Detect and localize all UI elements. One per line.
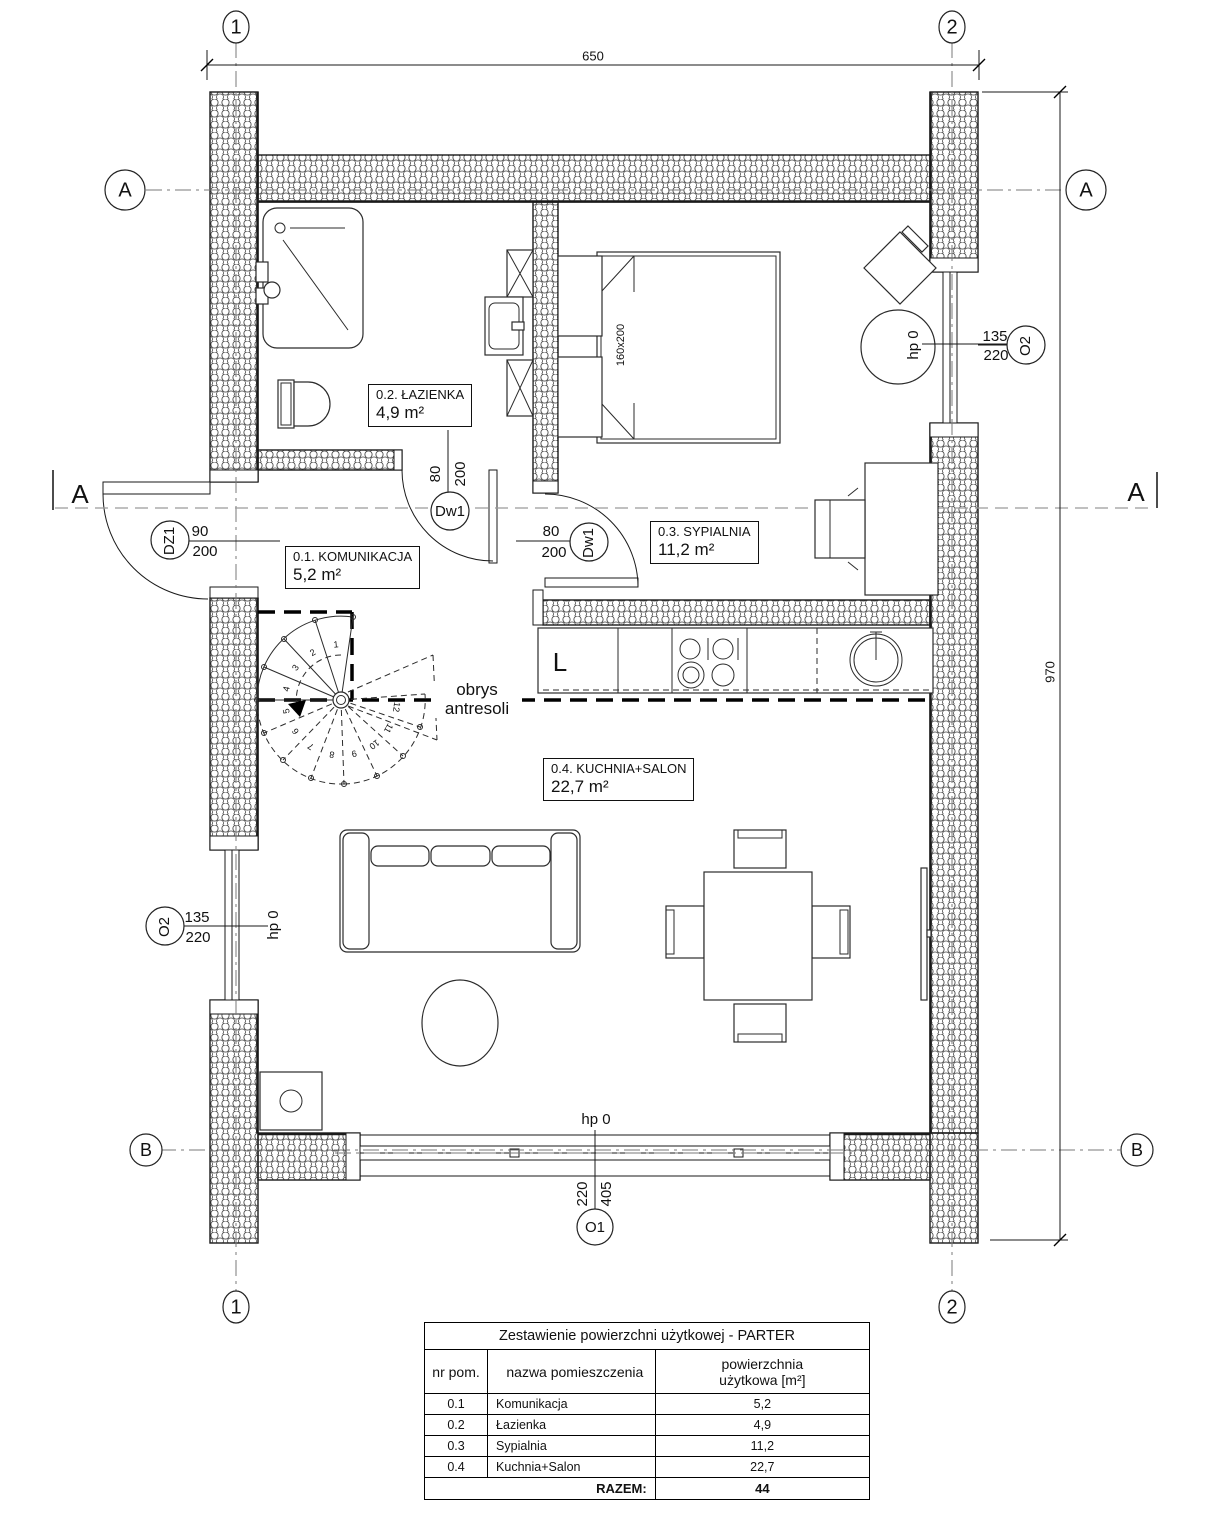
cell-nr: 0.1	[425, 1394, 488, 1415]
window-o2-left	[225, 850, 239, 1000]
window-o2-right	[943, 272, 957, 423]
cell-area: 4,9	[655, 1415, 869, 1436]
room-area: 4,9 m²	[376, 403, 464, 423]
hp-level-bedroom: hp 0	[905, 330, 922, 359]
bedroom-chair	[864, 226, 936, 304]
o2-left-width: 135	[184, 909, 209, 926]
cell-area: 22,7	[655, 1457, 869, 1478]
axis-a-right: A	[1079, 179, 1093, 201]
table-total-row: RAZEM: 44	[425, 1478, 870, 1500]
o2-right-width: 135	[982, 328, 1007, 345]
dw1-bath-symbol: Dw1	[435, 503, 465, 520]
stair-step-number: 3	[290, 663, 301, 673]
dw1-bath-width: 80	[427, 466, 444, 483]
tag-dw1-bedroom: 80 200 Dw1	[516, 523, 608, 561]
area-summary-table: Zestawienie powierzchni użytkowej - PART…	[424, 1322, 870, 1500]
axis-2-bottom: 2	[946, 1296, 957, 1318]
dimension-top: 650	[201, 48, 985, 80]
cell-area: 11,2	[655, 1436, 869, 1457]
stair-step-number: 5	[281, 708, 292, 715]
o2-left-height: 220	[185, 929, 210, 946]
room-label-lazienka: 0.2. ŁAZIENKA 4,9 m²	[368, 384, 472, 427]
bed-size-label: 160x200	[615, 324, 627, 366]
tag-o2-left: 135 220 O2 hp 0	[146, 907, 282, 946]
stair-step-number: 10	[367, 737, 381, 751]
cell-name: Łazienka	[488, 1415, 656, 1436]
col-header-area-line2: użytkowa [m²]	[657, 1372, 868, 1388]
room-title: 0.2. ŁAZIENKA	[376, 388, 464, 403]
bedroom-round-table	[861, 310, 935, 384]
total-value: 44	[655, 1478, 869, 1500]
mezzanine-label-line1: obrys	[432, 681, 522, 700]
nightstand	[558, 256, 602, 437]
axis-b-left: B	[140, 1140, 152, 1160]
axis-2-top: 2	[946, 16, 957, 38]
cell-nr: 0.3	[425, 1436, 488, 1457]
room-area: 11,2 m²	[658, 540, 751, 560]
o2-right-height: 220	[983, 347, 1008, 364]
room-label-sypialnia: 0.3. SYPIALNIA 11,2 m²	[650, 521, 759, 564]
room-area: 5,2 m²	[293, 565, 412, 585]
col-header-nr: nr pom.	[425, 1350, 488, 1394]
table-row: 0.2 Łazienka 4,9	[425, 1415, 870, 1436]
stair-step-number: 8	[329, 749, 336, 760]
room-title: 0.3. SYPIALNIA	[658, 525, 751, 540]
kitchen-counter: L	[538, 628, 933, 693]
dw1-bed-height: 200	[541, 544, 566, 561]
floor-plan-sheet: 1 2 1 2 A A B B A A 650 970	[0, 0, 1206, 1521]
cell-area: 5,2	[655, 1394, 869, 1415]
stair-step-number: 11	[382, 722, 395, 735]
dining-set	[666, 830, 850, 1042]
dz1-symbol: DZ1	[161, 527, 178, 555]
tag-dz1: 90 200 DZ1	[151, 521, 280, 560]
o1-symbol: O1	[585, 1219, 605, 1236]
dz1-height: 200	[192, 543, 217, 560]
cell-nr: 0.4	[425, 1457, 488, 1478]
table-row: 0.3 Sypialnia 11,2	[425, 1436, 870, 1457]
total-label: RAZEM:	[425, 1478, 656, 1500]
table-row: 0.1 Komunikacja 5,2	[425, 1394, 870, 1415]
stair-step-number: 2	[308, 647, 317, 658]
dim-650: 650	[582, 48, 604, 63]
room-label-komunikacja: 0.1. KOMUNIKACJA 5,2 m²	[285, 546, 420, 589]
sofa	[340, 830, 580, 952]
room-label-kuchnia-salon: 0.4. KUCHNIA+SALON 22,7 m²	[543, 758, 694, 801]
stair-step-number: 9	[351, 748, 358, 759]
cell-name: Kuchnia+Salon	[488, 1457, 656, 1478]
axis-1-bottom: 1	[230, 1296, 241, 1318]
axis-a-left: A	[118, 179, 132, 201]
table-title: Zestawienie powierzchni użytkowej - PART…	[425, 1323, 870, 1350]
dw1-bed-width: 80	[543, 523, 560, 540]
toilet	[278, 380, 330, 428]
cell-name: Komunikacja	[488, 1394, 656, 1415]
axis-b-right: B	[1131, 1140, 1143, 1160]
o2-left-symbol: O2	[156, 917, 173, 937]
axis-1-top: 1	[230, 16, 241, 38]
coffee-rug	[422, 980, 498, 1066]
stair-step-number: 6	[290, 726, 301, 736]
section-letter-right: A	[1127, 477, 1145, 507]
bathroom-vanity	[485, 250, 533, 416]
col-header-area-line1: powierzchnia	[657, 1356, 868, 1372]
desk	[815, 463, 938, 595]
dw1-bath-height: 200	[452, 461, 469, 486]
o1-width: 405	[598, 1181, 615, 1206]
mezzanine-label-line2: antresoli	[432, 700, 522, 719]
cell-name: Sypialnia	[488, 1436, 656, 1457]
room-title: 0.4. KUCHNIA+SALON	[551, 762, 686, 777]
spiral-stair: 1 2 3 4 5 6 7 8 9 10 11 12	[255, 615, 438, 787]
o2-right-symbol: O2	[1017, 336, 1034, 356]
table-row: 0.4 Kuchnia+Salon 22,7	[425, 1457, 870, 1478]
dim-970: 970	[1042, 661, 1057, 683]
shower	[256, 208, 363, 348]
dw1-bed-symbol: Dw1	[580, 528, 597, 558]
dimension-right: 970	[982, 86, 1068, 1246]
bed: 160x200	[597, 252, 780, 443]
col-header-area: powierzchnia użytkowa [m²]	[655, 1350, 869, 1394]
o1-height: 220	[574, 1181, 591, 1206]
dz1-width: 90	[192, 523, 209, 540]
col-header-name: nazwa pomieszczenia	[488, 1350, 656, 1394]
stair-step-number: 1	[333, 639, 339, 649]
mezzanine-label: obrys antresoli	[432, 681, 522, 718]
hp-level-living: hp 0	[265, 910, 282, 939]
tag-dw1-bathroom: 80 200 Dw1	[427, 430, 469, 530]
fridge-label: L	[553, 647, 567, 677]
hp-level-bottom: hp 0	[581, 1111, 610, 1128]
stove	[260, 1072, 322, 1130]
room-title: 0.1. KOMUNIKACJA	[293, 550, 412, 565]
stair-step-number: 4	[281, 685, 292, 692]
section-letter-left: A	[71, 479, 89, 509]
stair-step-number: 12	[391, 701, 402, 712]
tag-o1-bottom: hp 0 220 405 O1	[574, 1111, 615, 1245]
room-area: 22,7 m²	[551, 777, 686, 797]
cell-nr: 0.2	[425, 1415, 488, 1436]
stair-step-number: 7	[306, 741, 316, 752]
